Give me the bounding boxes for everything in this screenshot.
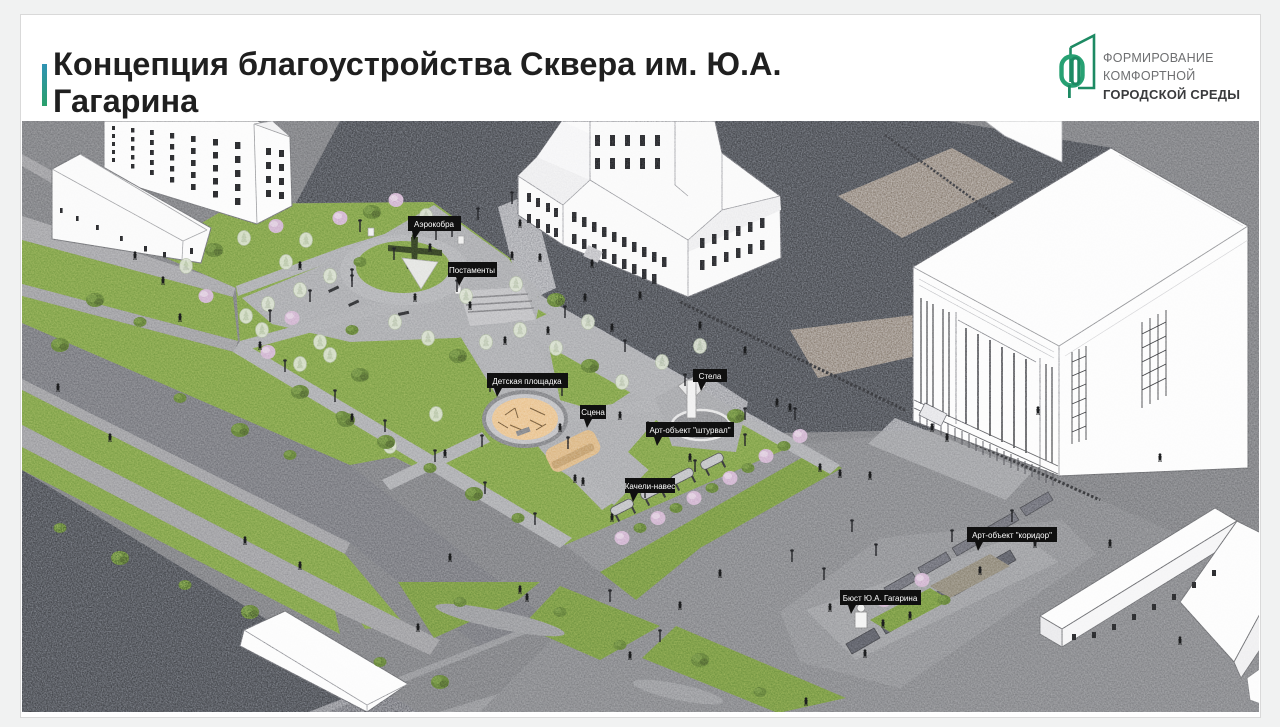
svg-text:Арт-объект "коридор": Арт-объект "коридор" (972, 531, 1052, 540)
svg-text:Постаменты: Постаменты (449, 266, 495, 275)
svg-text:Арт-объект "штурвал": Арт-объект "штурвал" (649, 426, 730, 435)
svg-text:Детская площадка: Детская площадка (492, 377, 562, 386)
svg-text:Сцена: Сцена (581, 408, 605, 417)
svg-text:ФОРМИРОВАНИЕ: ФОРМИРОВАНИЕ (1103, 51, 1214, 65)
svg-text:Бюст Ю.А. Гагарина: Бюст Ю.А. Гагарина (843, 594, 918, 603)
svg-text:ГОРОДСКОЙ СРЕДЫ: ГОРОДСКОЙ СРЕДЫ (1103, 87, 1240, 102)
svg-text:Стела: Стела (699, 372, 722, 381)
svg-text:Концепция благоустройства Скве: Концепция благоустройства Сквера им. Ю.А… (53, 46, 782, 82)
svg-text:Аэрокобра: Аэрокобра (414, 220, 455, 229)
svg-text:Качели-навес: Качели-навес (625, 482, 676, 491)
svg-text:Гагарина: Гагарина (53, 83, 199, 119)
svg-text:КОМФОРТНОЙ: КОМФОРТНОЙ (1103, 68, 1196, 83)
